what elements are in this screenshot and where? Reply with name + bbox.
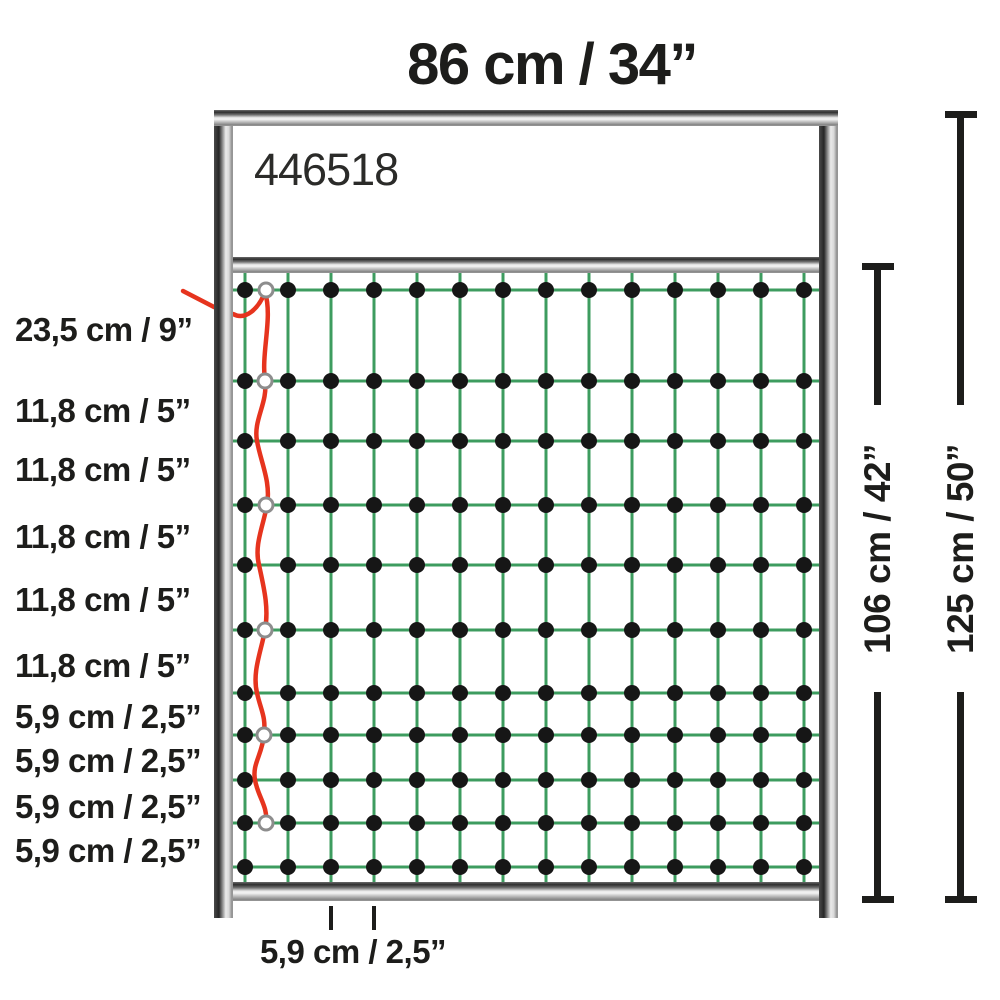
dimension-segment <box>957 692 964 898</box>
dimension-segment <box>957 116 964 405</box>
left-spacing-label: 11,8 cm / 5” <box>15 394 191 427</box>
spacing-tick <box>329 906 333 930</box>
insulator-ring <box>258 623 272 637</box>
dimension-segment <box>874 692 881 898</box>
dimension-cap-bottom <box>862 896 894 903</box>
gate-left-post <box>214 111 233 918</box>
left-spacing-label: 5,9 cm / 2,5” <box>15 834 201 867</box>
bottom-spacing-label: 5,9 cm / 2,5” <box>260 933 446 971</box>
insulator-ring <box>259 283 273 297</box>
net-height-label: 106 cm / 42” <box>857 444 899 654</box>
left-spacing-label: 23,5 cm / 9” <box>15 313 192 346</box>
left-spacing-label: 11,8 cm / 5” <box>15 520 191 553</box>
gate-top-rail <box>214 110 838 126</box>
gate-bottom-rail <box>228 882 820 901</box>
left-spacing-label: 5,9 cm / 2,5” <box>15 744 201 777</box>
insulator-ring <box>258 374 272 388</box>
left-spacing-label: 11,8 cm / 5” <box>15 583 191 616</box>
total-height-label: 125 cm / 50” <box>940 444 982 654</box>
left-spacing-label: 5,9 cm / 2,5” <box>15 700 201 733</box>
dimension-segment <box>874 268 881 405</box>
insulator-ring <box>259 498 273 512</box>
dimension-cap-bottom <box>945 896 977 903</box>
insulator-ring <box>257 728 271 742</box>
width-dimension-title: 86 cm / 34” <box>407 31 697 98</box>
gate-middle-rail <box>233 257 819 273</box>
left-spacing-label: 11,8 cm / 5” <box>15 453 191 486</box>
gate-right-post <box>819 111 838 918</box>
spacing-tick <box>372 906 376 930</box>
insulator-ring <box>259 816 273 830</box>
left-spacing-label: 5,9 cm / 2,5” <box>15 790 201 823</box>
fence-netting-diagram: 86 cm / 34” 446518 23,5 cm / 9” 11,8 cm … <box>0 0 1000 1000</box>
left-spacing-label: 11,8 cm / 5” <box>15 649 191 682</box>
product-number: 446518 <box>254 144 398 196</box>
